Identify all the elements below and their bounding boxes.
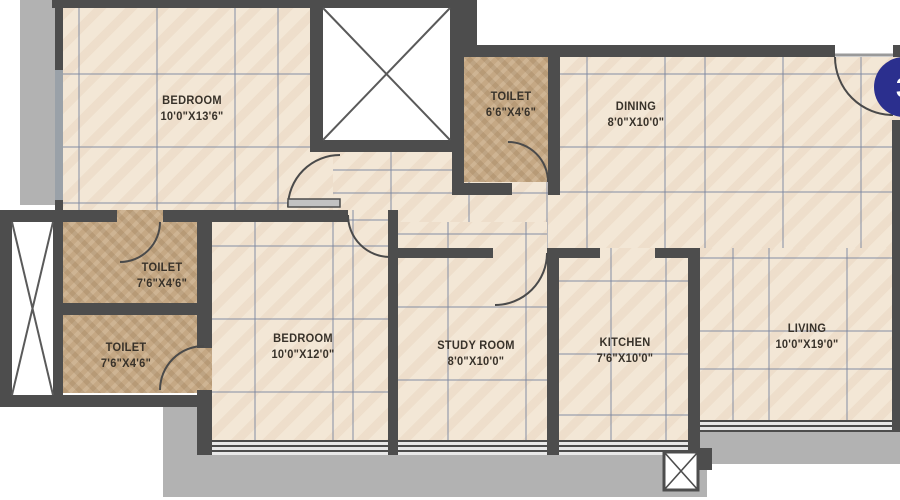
wall: [548, 45, 560, 195]
wall: [197, 210, 212, 348]
wall: [310, 8, 323, 152]
room-name: TOILET: [491, 91, 532, 103]
wall: [197, 390, 212, 455]
room-name: DINING: [616, 101, 656, 113]
wall: [892, 120, 900, 432]
balcony-bottom-strip: [212, 455, 707, 497]
room-dims: 6'6"X4'6": [486, 107, 536, 119]
window: [559, 440, 688, 455]
room-label-kitchen: KITCHEN 7'6"X10'0": [597, 335, 654, 367]
wall: [53, 303, 212, 315]
elevator-shaft: [323, 8, 450, 140]
wall: [0, 210, 12, 407]
room-label-study: STUDY ROOM 8'0"X10'0": [437, 338, 515, 370]
room-dims: 8'0"X10'0": [608, 117, 665, 129]
room-dims: 8'0"X10'0": [448, 356, 505, 368]
wall: [452, 57, 464, 195]
wall: [688, 248, 700, 470]
wall: [452, 183, 512, 195]
window: [212, 440, 388, 455]
room-label-bedroom-2: BEDROOM 10'0"X12'0": [271, 331, 334, 363]
wall: [547, 248, 559, 455]
window: [700, 420, 892, 432]
floor-dining: [548, 57, 900, 248]
room-dims: 7'6"X10'0": [597, 353, 654, 365]
floor-plan: 3 BEDROOM 10'0"X13'6" TOILET 6'6"X4'6" D…: [0, 0, 900, 500]
room-label-toilet-upper-left: TOILET 7'6"X4'6": [137, 260, 187, 292]
wall: [893, 45, 900, 57]
room-label-dining: DINING 8'0"X10'0": [608, 99, 665, 131]
balcony-left-strip: [20, 0, 55, 205]
wall: [52, 0, 467, 8]
room-name: BEDROOM: [273, 333, 333, 345]
room-name: LIVING: [788, 323, 827, 335]
room-dims: 10'0"X12'0": [271, 349, 334, 361]
room-label-living: LIVING 10'0"X19'0": [775, 321, 838, 353]
duct-shaft-left: [12, 222, 53, 395]
room-dims: 10'0"X13'6": [160, 111, 223, 123]
room-label-toilet-lower-left: TOILET 7'6"X4'6": [101, 340, 151, 372]
wall: [163, 210, 348, 222]
room-label-bedroom-1: BEDROOM 10'0"X13'6": [160, 93, 223, 125]
room-name: STUDY ROOM: [437, 340, 515, 352]
balcony-bottom-right-strip: [700, 432, 900, 464]
room-name: TOILET: [142, 262, 183, 274]
room-dims: 10'0"X19'0": [775, 339, 838, 351]
wall: [310, 140, 463, 152]
room-name: TOILET: [106, 342, 147, 354]
window: [398, 440, 547, 455]
wall: [452, 45, 835, 57]
wall: [0, 395, 212, 407]
wall: [388, 210, 398, 455]
window: [55, 70, 63, 200]
room-label-toilet-top: TOILET 6'6"X4'6": [486, 89, 536, 121]
wall: [398, 248, 493, 258]
room-name: KITCHEN: [599, 337, 650, 349]
room-dims: 7'6"X4'6": [137, 278, 187, 290]
room-name: BEDROOM: [162, 95, 222, 107]
room-dims: 7'6"X4'6": [101, 358, 151, 370]
wall: [688, 448, 712, 470]
